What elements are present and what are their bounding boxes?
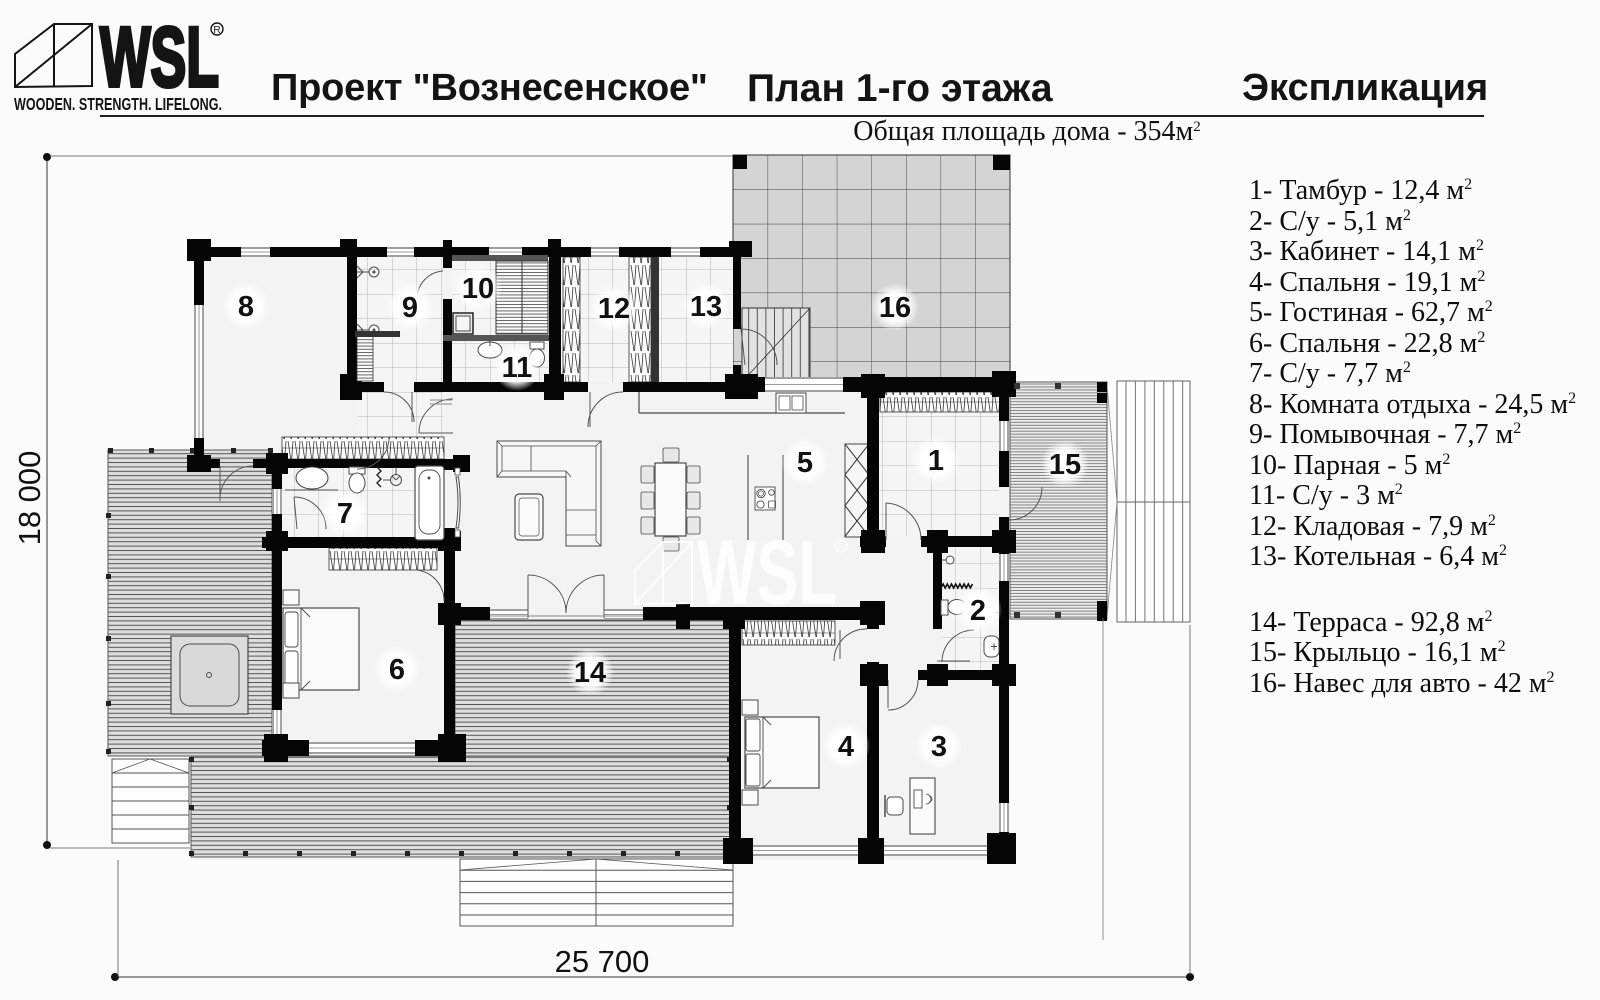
svg-text:4: 4: [838, 731, 854, 763]
svg-text:7: 7: [337, 498, 353, 530]
svg-text:1: 1: [928, 445, 944, 477]
svg-text:12: 12: [598, 293, 630, 325]
svg-text:16: 16: [879, 292, 911, 324]
svg-text:WOODEN. STRENGTH. LIFELONG.: WOODEN. STRENGTH. LIFELONG.: [14, 94, 222, 114]
svg-text:13: 13: [690, 291, 722, 323]
svg-text:5: 5: [797, 447, 813, 479]
svg-text:6: 6: [389, 654, 405, 686]
svg-text:15: 15: [1049, 449, 1081, 481]
svg-text:R: R: [837, 542, 844, 553]
svg-text:WSL: WSL: [697, 522, 837, 624]
svg-text:9: 9: [402, 292, 418, 324]
svg-text:R: R: [213, 25, 220, 36]
svg-text:11: 11: [502, 352, 533, 384]
svg-text:2: 2: [970, 595, 986, 627]
svg-text:WSL: WSL: [100, 10, 219, 104]
svg-text:8: 8: [238, 291, 254, 323]
svg-text:14: 14: [574, 657, 606, 689]
svg-text:3: 3: [931, 731, 947, 763]
svg-text:10: 10: [462, 273, 494, 305]
